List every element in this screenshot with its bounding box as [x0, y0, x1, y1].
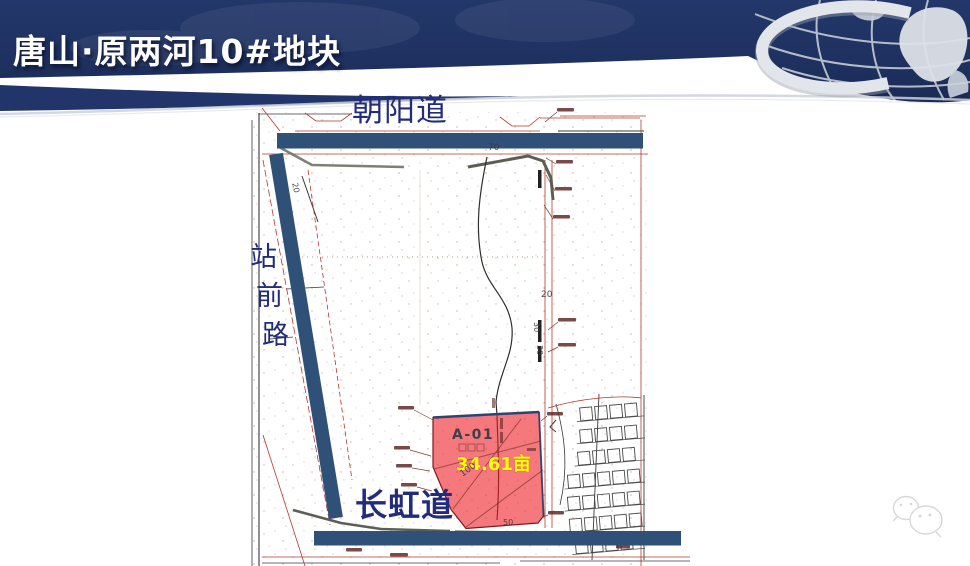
road-label-zhanqian-char3: 路: [262, 322, 289, 349]
road-label-changhong: 长虹道: [355, 489, 454, 521]
slide: 唐山·原两河10#地块: [0, 0, 970, 566]
road-bar-top: [277, 133, 643, 149]
dim-label-30-b: 30: [535, 345, 543, 355]
dim-label-70: 70: [488, 144, 499, 153]
site-plan-drawing: [0, 0, 970, 566]
wechat-watermark-icon: [893, 497, 942, 538]
dim-label-30-a: 30: [532, 322, 540, 332]
parcel-id-label: A-01: [452, 427, 494, 443]
road-label-zhanqian-char1: 站: [250, 244, 277, 271]
road-label-chaoyang: 朝阳道: [352, 96, 448, 127]
road-bar-bottom: [314, 531, 681, 546]
dim-label-50: 50: [503, 519, 513, 527]
road-label-zhanqian-char2: 前: [256, 283, 283, 310]
slide-title: 唐山·原两河10#地块: [13, 25, 341, 73]
dim-label-20-west: 20: [290, 182, 300, 194]
dim-label-20-east: 20: [541, 291, 552, 300]
